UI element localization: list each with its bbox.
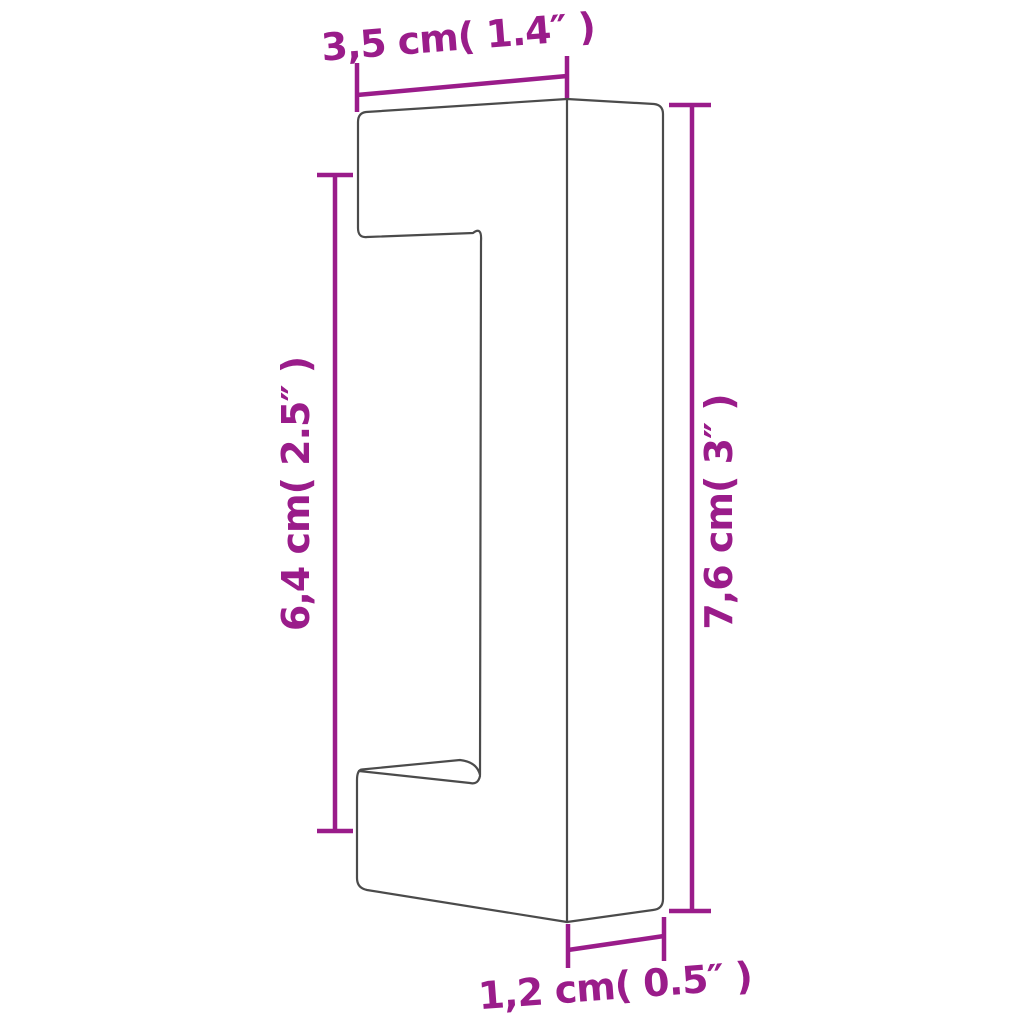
handle-bottom-leg-top-edge <box>359 771 480 783</box>
handle-outline <box>357 99 663 922</box>
handle-diagram-svg <box>0 0 1024 1024</box>
dimension-left-line <box>317 175 353 831</box>
dimension-left-label: 6,4 cm( 2.5″ ) <box>274 357 318 631</box>
dimension-drawing: 3,5 cm( 1.4″ ) 6,4 cm( 2.5″ ) 7,6 cm( 3″… <box>0 0 1024 1024</box>
handle-silhouette <box>357 99 663 922</box>
dimension-right-label: 7,6 cm( 3″ ) <box>697 394 741 629</box>
